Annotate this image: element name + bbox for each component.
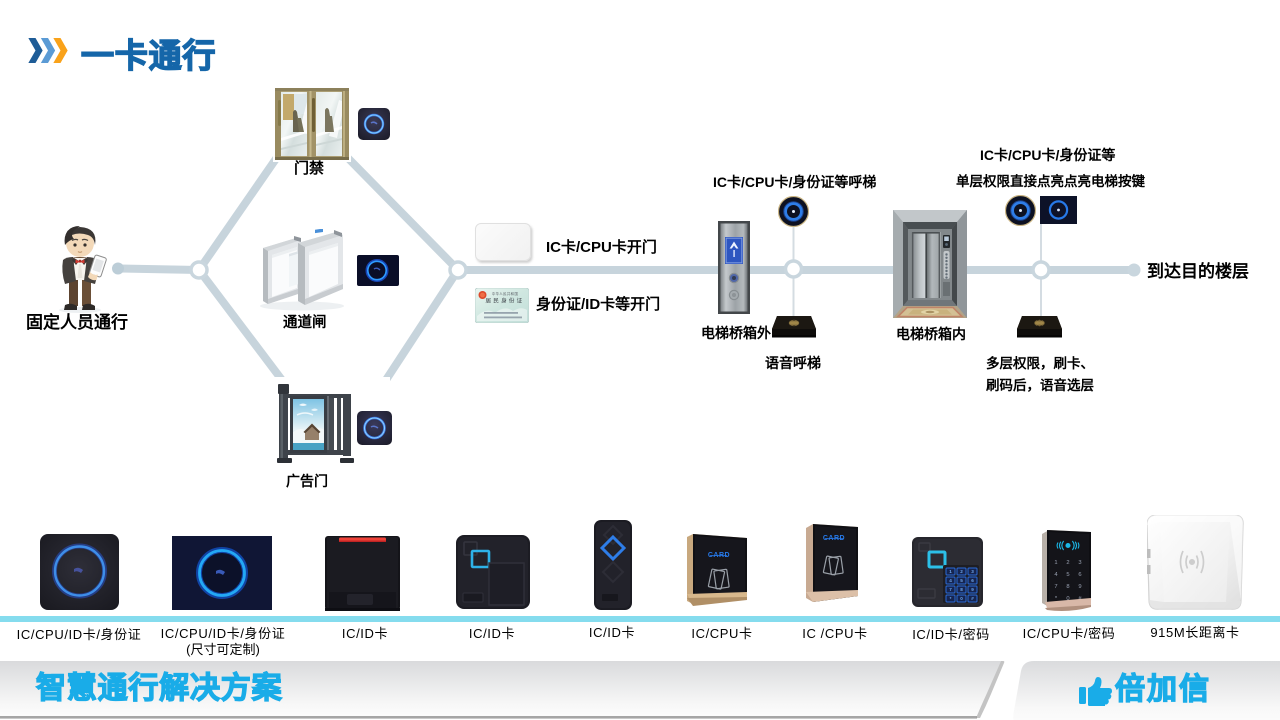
svg-text:6: 6 xyxy=(1078,572,1081,578)
svg-text:1: 1 xyxy=(949,569,952,574)
svg-text:中华人民共和国: 中华人民共和国 xyxy=(492,291,519,296)
svg-text:2: 2 xyxy=(960,569,963,574)
svg-text:9: 9 xyxy=(971,587,974,592)
svg-text:居民身份证: 居民身份证 xyxy=(486,297,525,305)
svg-text:1: 1 xyxy=(1054,560,1057,566)
svg-text:7: 7 xyxy=(1054,584,1057,590)
svg-text:6: 6 xyxy=(971,578,974,583)
svg-text:8: 8 xyxy=(1066,584,1069,590)
svg-text:3: 3 xyxy=(971,569,974,574)
svg-text:#: # xyxy=(971,596,974,601)
svg-text:4: 4 xyxy=(949,578,952,583)
svg-text:0: 0 xyxy=(960,596,963,601)
svg-text:2: 2 xyxy=(1066,560,1069,566)
svg-text:8: 8 xyxy=(960,587,963,592)
svg-text:5: 5 xyxy=(960,578,963,583)
svg-text:5: 5 xyxy=(1066,572,1069,578)
svg-text:7: 7 xyxy=(949,587,952,592)
svg-text:3: 3 xyxy=(1078,560,1081,566)
svg-text:*: * xyxy=(950,596,952,601)
svg-text:9: 9 xyxy=(1078,584,1081,590)
